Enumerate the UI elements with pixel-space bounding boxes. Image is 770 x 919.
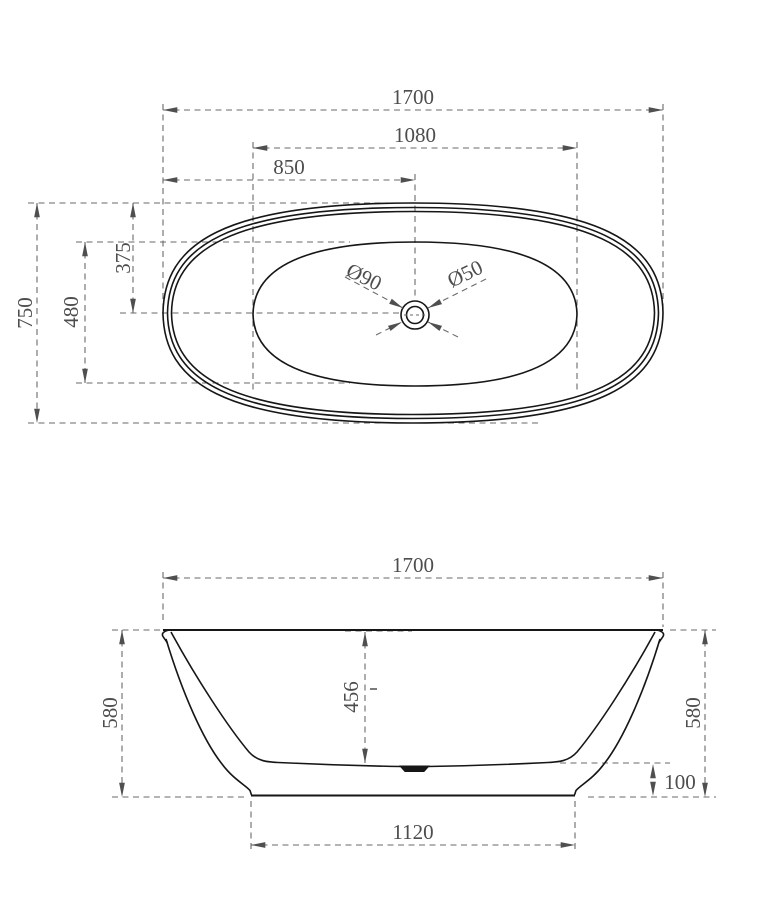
dim-text-top-overall-length: 1700 <box>392 85 434 109</box>
bathtub-technical-drawing: 1700 1080 850 750 480 375 Ø90 Ø50 <box>0 0 770 919</box>
dim-text-base-length: 1120 <box>392 820 433 844</box>
top-view: 1700 1080 850 750 480 375 Ø90 Ø50 <box>13 85 663 423</box>
dim-text-height-right: 580 <box>681 697 705 729</box>
dim-text-drain-offset: 850 <box>273 155 305 179</box>
dim-text-basin-width: 480 <box>59 296 83 328</box>
drain-hole-circle <box>407 307 424 324</box>
drain-recess <box>400 766 429 772</box>
dim-text-drain-offset-side: 375 <box>111 242 135 274</box>
outer-wall-left <box>166 639 252 795</box>
front-view: 1700 580 456 580 100 1120 <box>98 553 716 851</box>
outer-wall-right <box>575 639 661 795</box>
bathtub-technical-drawing-page: 1700 1080 850 750 480 375 Ø90 Ø50 <box>0 0 770 919</box>
dim-text-drain-hole-diameter: Ø50 <box>443 255 486 292</box>
dim-text-basin-length: 1080 <box>394 123 436 147</box>
dim-text-drain-flange-diameter: Ø90 <box>343 258 386 295</box>
dim-text-height-left: 580 <box>98 697 122 729</box>
drain <box>401 301 429 329</box>
dim-text-inner-depth: 456 <box>339 681 363 713</box>
tub-profile-outline <box>162 630 663 796</box>
dim-text-base-height: 100 <box>664 770 696 794</box>
dim-text-overall-width: 750 <box>13 297 37 329</box>
dim-text-front-overall-length: 1700 <box>392 553 434 577</box>
front-view-extension-lines <box>112 572 716 851</box>
front-view-dimension-lines <box>122 578 705 845</box>
